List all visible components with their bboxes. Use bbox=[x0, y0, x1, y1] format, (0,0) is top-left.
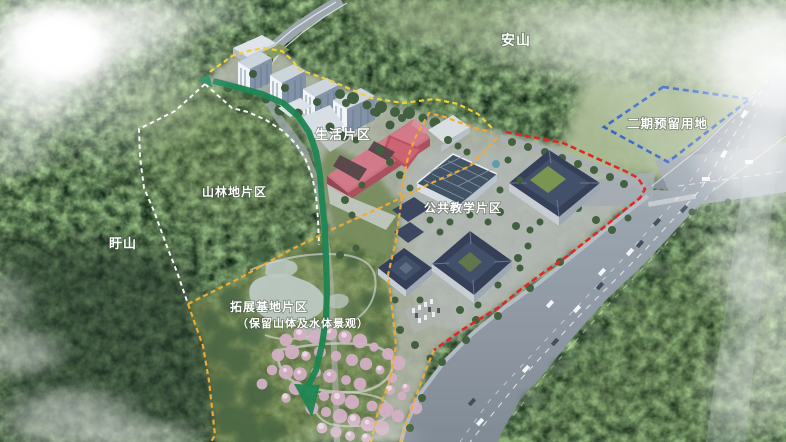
svg-text:（保留山体及水体景观）: （保留山体及水体景观） bbox=[237, 316, 369, 330]
svg-text:山林地片区: 山林地片区 bbox=[202, 184, 267, 199]
svg-text:生活片区: 生活片区 bbox=[315, 127, 371, 142]
svg-text:安山: 安山 bbox=[501, 32, 531, 48]
svg-text:公共教学片区: 公共教学片区 bbox=[424, 200, 502, 215]
svg-text:二期预留用地: 二期预留用地 bbox=[627, 116, 708, 131]
svg-text:拓展基地片区: 拓展基地片区 bbox=[230, 299, 308, 314]
svg-text:盱山: 盱山 bbox=[109, 236, 137, 251]
